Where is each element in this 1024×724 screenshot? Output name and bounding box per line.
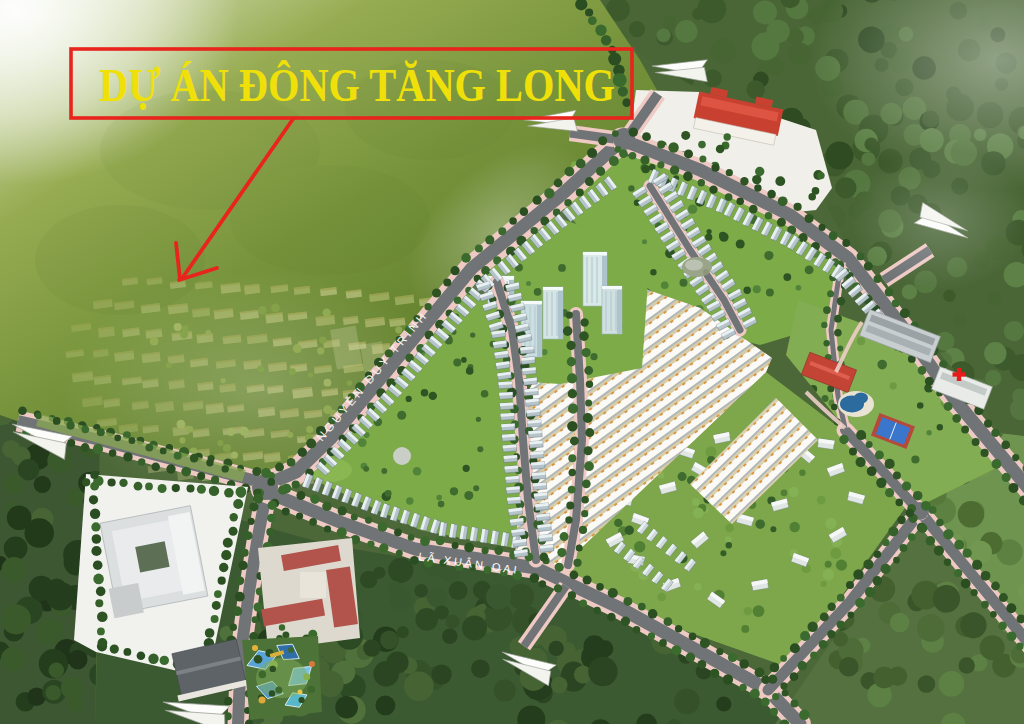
svg-text:DỰ ÁN ĐÔNG TĂNG LONG: DỰ ÁN ĐÔNG TĂNG LONG bbox=[99, 59, 615, 111]
